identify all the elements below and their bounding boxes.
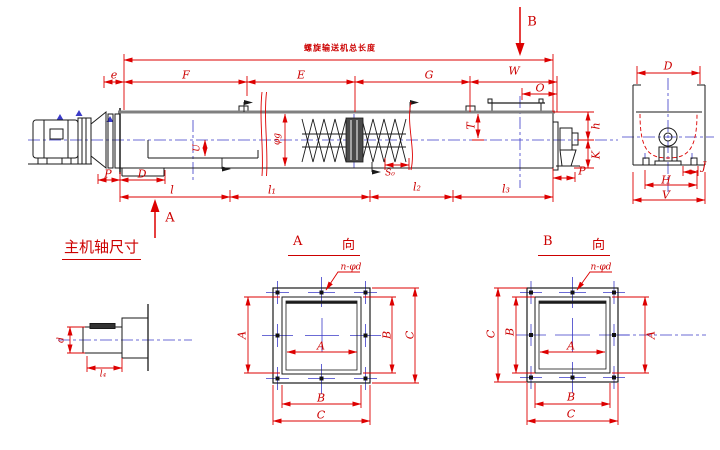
end-bearing-right xyxy=(553,122,580,170)
end-view-dim-J: J xyxy=(702,161,706,172)
discharge-outlet xyxy=(488,99,545,112)
dimension-lines xyxy=(67,7,705,425)
view-b-title: B 向 xyxy=(538,234,610,256)
view-arrow-b-head xyxy=(516,43,525,56)
flange-b-dim-leftB: B xyxy=(505,328,516,336)
dim-label-S0: S₀ xyxy=(385,170,395,179)
view-b-title-letter: B xyxy=(543,234,553,253)
view-a-title: A 向 xyxy=(288,234,360,256)
dim-label-U: U xyxy=(194,144,203,152)
dim-label-l1: l₁ xyxy=(268,185,276,196)
flange-b-dim-leftC: C xyxy=(486,330,497,338)
dim-label-l3: l₃ xyxy=(502,184,510,195)
dim-label-O: O xyxy=(535,83,544,94)
dim-label-h: h xyxy=(591,122,602,129)
flange-a-bolt-note: n-φd xyxy=(341,264,362,273)
shaft-dim-l4: l₄ xyxy=(100,371,107,380)
flange-a-dim-rightB: B xyxy=(382,331,393,339)
end-view-dim-D: D xyxy=(664,61,673,72)
flange-a-dim-bottomC: C xyxy=(317,410,325,421)
end-view-drawing xyxy=(633,85,705,165)
end-view-dim-V: V xyxy=(662,190,670,201)
dim-label-T: T xyxy=(466,122,477,129)
flange-a-dim-innerA: A xyxy=(317,341,325,352)
flange-a-dim-rightC: C xyxy=(405,331,416,339)
view-arrow-a-head xyxy=(151,199,160,212)
flange-b-bolt-leader xyxy=(577,272,612,290)
trough xyxy=(120,106,553,176)
flange-a-dim-leftA: A xyxy=(237,331,248,339)
drawing-canvas xyxy=(0,0,720,450)
dim-label-P-left: P xyxy=(104,169,111,180)
dim-label-E: E xyxy=(297,70,305,81)
end-view-trough-curve xyxy=(640,114,697,158)
view-a-title-suffix: 向 xyxy=(342,234,355,253)
flange-b-dim-bottomB: B xyxy=(567,392,575,403)
view-arrow-a-label: A xyxy=(165,211,174,226)
dim-label-P-right: P xyxy=(578,166,585,177)
dim-label-W: W xyxy=(508,66,519,77)
flange-a-centermarks xyxy=(262,277,381,394)
dim-label-l2: l₂ xyxy=(413,182,421,193)
dim-label-G: G xyxy=(425,70,434,81)
view-arrow-b-label: B xyxy=(527,15,537,30)
dim-label-phi: φg xyxy=(274,133,283,145)
flange-b-dim-rightA: A xyxy=(646,331,657,339)
shaft-detail-drawing xyxy=(83,304,148,371)
engineering-drawing-page: { "annotation_colors": { "dimension_red"… xyxy=(0,0,720,450)
overall-length-note: 螺旋输送机总长度 xyxy=(304,43,376,54)
dim-label-K: K xyxy=(591,151,602,159)
dim-label-F: F xyxy=(182,70,190,81)
view-a-title-letter: A xyxy=(293,234,302,253)
flange-a-bolt-leader xyxy=(326,272,360,290)
end-view-dim-H: H xyxy=(661,175,671,186)
dim-label-l: l xyxy=(170,185,174,196)
flange-b-bolt-note: n-φd xyxy=(591,264,612,273)
view-b-title-suffix: 向 xyxy=(592,234,605,253)
shaft-detail-title: 主机轴尺寸 xyxy=(62,236,141,260)
shaft-dim-d: d xyxy=(58,337,67,343)
dim-label-D-left: D xyxy=(138,169,147,180)
dim-label-e: e xyxy=(111,70,118,81)
flange-b-dim-innerA: A xyxy=(567,341,575,352)
flange-b-dim-bottomC: C xyxy=(567,409,575,420)
flange-a-dim-bottomB: B xyxy=(317,393,325,404)
hanger-bearing xyxy=(346,118,363,162)
